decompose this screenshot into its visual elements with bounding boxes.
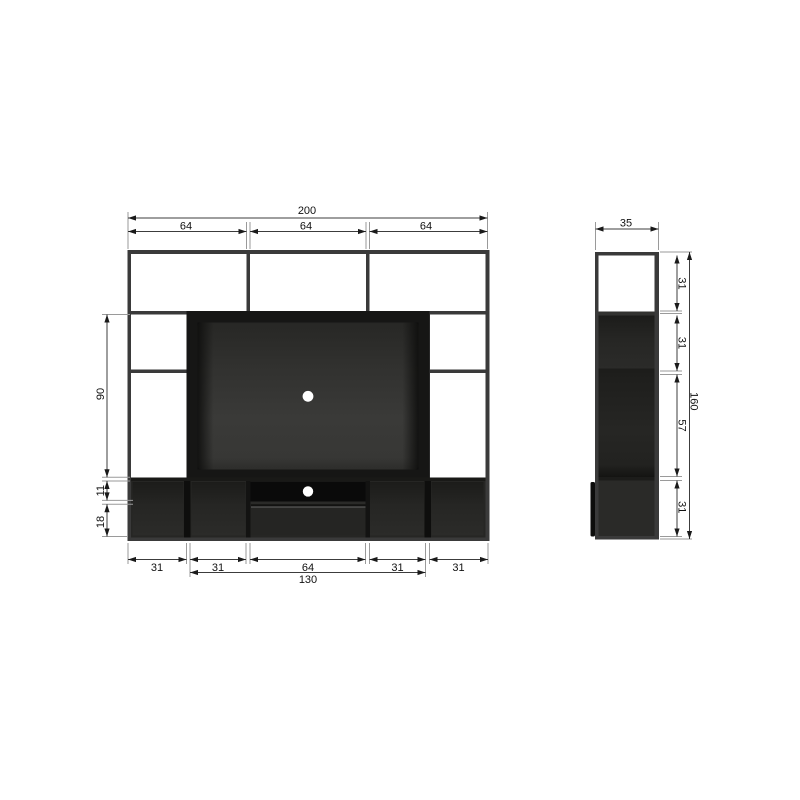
svg-text:31: 31 <box>151 562 163 574</box>
svg-text:64: 64 <box>180 221 192 233</box>
svg-text:130: 130 <box>299 574 317 586</box>
svg-text:200: 200 <box>298 205 316 217</box>
svg-text:31: 31 <box>676 337 688 349</box>
svg-text:160: 160 <box>687 392 699 410</box>
svg-text:35: 35 <box>620 218 632 230</box>
svg-text:31: 31 <box>676 501 688 513</box>
svg-text:64: 64 <box>300 221 312 233</box>
svg-text:31: 31 <box>452 562 464 574</box>
svg-text:31: 31 <box>676 277 688 289</box>
svg-text:57: 57 <box>676 419 688 431</box>
svg-text:11: 11 <box>95 485 107 496</box>
svg-text:90: 90 <box>95 388 107 400</box>
svg-text:18: 18 <box>95 516 107 528</box>
svg-text:64: 64 <box>420 221 432 233</box>
